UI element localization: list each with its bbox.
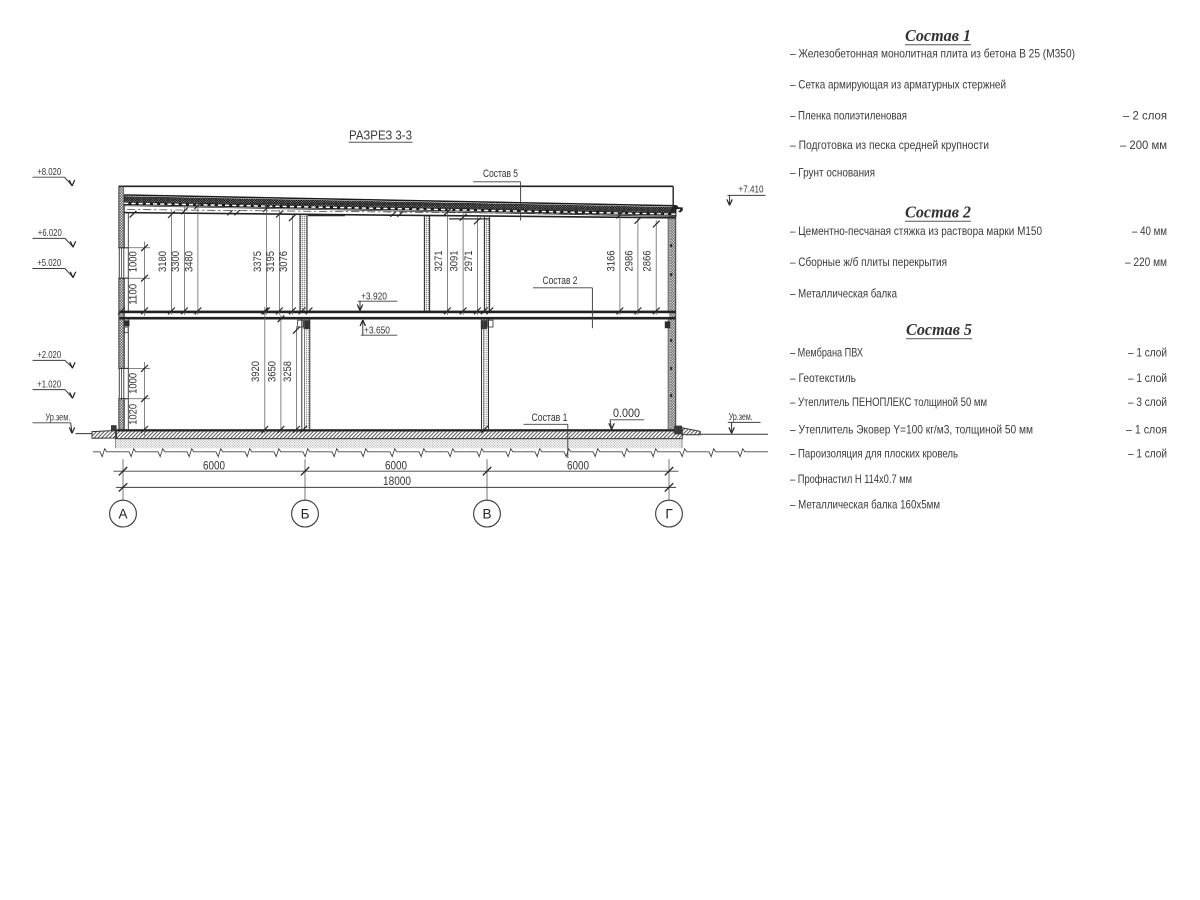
svg-text:– Подготовка из песка средней: – Подготовка из песка средней крупности bbox=[790, 138, 989, 152]
svg-text:6000: 6000 bbox=[203, 460, 225, 472]
svg-text:3271: 3271 bbox=[433, 251, 445, 272]
svg-text:– Цементно-песчаная стяжка из: – Цементно-песчаная стяжка из раствора м… bbox=[790, 224, 1042, 238]
svg-text:3375: 3375 bbox=[252, 251, 264, 272]
svg-text:– Металлическая балка 160х5мм: – Металлическая балка 160х5мм bbox=[790, 498, 940, 512]
svg-text:Ур.зем.: Ур.зем. bbox=[729, 411, 753, 423]
svg-text:– Пароизоляция для плоских кро: – Пароизоляция для плоских кровель bbox=[790, 447, 958, 461]
svg-text:1000: 1000 bbox=[128, 251, 140, 272]
svg-text:Состав 2: Состав 2 bbox=[543, 275, 578, 287]
svg-text:– Утеплитель ПЕНОПЛЕКС толщино: – Утеплитель ПЕНОПЛЕКС толщиной 50 мм bbox=[790, 395, 987, 409]
svg-text:2866: 2866 bbox=[642, 251, 654, 272]
svg-text:Состав 1: Состав 1 bbox=[532, 412, 568, 424]
svg-text:– Геотекстиль: – Геотекстиль bbox=[790, 371, 856, 385]
svg-text:+3.650: +3.650 bbox=[364, 324, 390, 336]
svg-text:3258: 3258 bbox=[282, 361, 294, 382]
svg-text:– 40 мм: – 40 мм bbox=[1132, 224, 1167, 238]
svg-text:– 2 слоя: – 2 слоя bbox=[1123, 109, 1167, 123]
svg-text:– Пленка полиэтиленовая: – Пленка полиэтиленовая bbox=[790, 109, 907, 123]
svg-text:3195: 3195 bbox=[265, 251, 277, 272]
svg-text:Ур.зем.: Ур.зем. bbox=[45, 411, 70, 423]
svg-text:В: В bbox=[482, 506, 491, 521]
svg-text:1000: 1000 bbox=[128, 373, 140, 394]
svg-text:+2.020: +2.020 bbox=[37, 349, 61, 361]
svg-text:3091: 3091 bbox=[449, 251, 461, 272]
svg-text:6000: 6000 bbox=[385, 460, 407, 472]
svg-text:3076: 3076 bbox=[278, 251, 290, 272]
svg-text:3300: 3300 bbox=[170, 251, 182, 272]
svg-text:+5.020: +5.020 bbox=[37, 257, 61, 269]
svg-text:3480: 3480 bbox=[183, 251, 195, 272]
svg-text:– Сборные ж/б плиты перекрытия: – Сборные ж/б плиты перекрытия bbox=[790, 255, 947, 269]
svg-text:3650: 3650 bbox=[266, 361, 278, 382]
svg-text:Состав 2: Состав 2 bbox=[905, 203, 971, 222]
svg-text:1020: 1020 bbox=[128, 404, 140, 425]
svg-text:– 1 слой: – 1 слой bbox=[1128, 371, 1167, 385]
svg-text:– Грунт основания: – Грунт основания bbox=[790, 166, 875, 180]
svg-text:– 3 слой: – 3 слой bbox=[1128, 395, 1167, 409]
svg-text:– 1 слой: – 1 слой bbox=[1128, 447, 1167, 461]
svg-text:6000: 6000 bbox=[567, 460, 589, 472]
svg-text:– 200 мм: – 200 мм bbox=[1120, 138, 1167, 152]
svg-text:+1.020: +1.020 bbox=[37, 378, 61, 390]
svg-text:18000: 18000 bbox=[383, 476, 411, 488]
svg-text:3920: 3920 bbox=[250, 361, 262, 382]
svg-text:– Профнастил Н 114х0.7 мм: – Профнастил Н 114х0.7 мм bbox=[790, 472, 912, 486]
svg-text:– Утеплитель Эковер Y=100 кг/м: – Утеплитель Эковер Y=100 кг/м3, толщино… bbox=[790, 423, 1033, 437]
svg-text:– Железобетонная монолитная п: – Железобетонная монолитная плита из бет… bbox=[790, 47, 1075, 61]
svg-text:– 1 слоя: – 1 слоя bbox=[1126, 423, 1167, 437]
svg-text:+7.410: +7.410 bbox=[739, 184, 764, 196]
svg-text:– 1 слой: – 1 слой bbox=[1128, 346, 1167, 360]
svg-text:2971: 2971 bbox=[463, 251, 475, 272]
svg-text:Состав 1: Состав 1 bbox=[905, 26, 971, 45]
svg-text:Состав 5: Состав 5 bbox=[483, 168, 518, 180]
svg-text:Б: Б bbox=[301, 506, 310, 521]
svg-text:– Мембрана ПВХ: – Мембрана ПВХ bbox=[790, 346, 863, 360]
svg-text:2986: 2986 bbox=[623, 251, 635, 272]
svg-text:1100: 1100 bbox=[128, 284, 140, 305]
svg-text:– Металлическая балка: – Металлическая балка bbox=[790, 287, 897, 301]
svg-text:– 220 мм: – 220 мм bbox=[1125, 255, 1167, 269]
svg-text:Состав 5: Состав 5 bbox=[906, 320, 972, 339]
svg-text:+8.020: +8.020 bbox=[37, 166, 61, 178]
svg-text:Г: Г bbox=[665, 506, 673, 521]
svg-text:0.000: 0.000 bbox=[613, 406, 640, 420]
svg-text:3180: 3180 bbox=[157, 251, 169, 272]
svg-text:+6.020: +6.020 bbox=[38, 227, 62, 239]
svg-text:– Сетка армирующая из арматурн: – Сетка армирующая из арматурных стержне… bbox=[790, 78, 1006, 92]
svg-text:А: А bbox=[118, 506, 127, 521]
svg-text:РАЗРЕЗ 3-3: РАЗРЕЗ 3-3 bbox=[349, 129, 412, 143]
svg-text:3166: 3166 bbox=[605, 251, 617, 272]
